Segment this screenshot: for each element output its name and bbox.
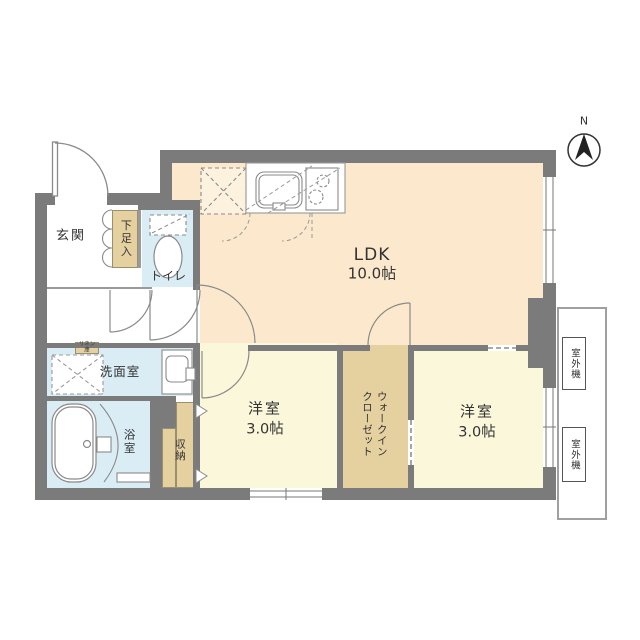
wall (248, 345, 370, 351)
wall (150, 428, 162, 488)
outdoor-unit-2-label: 室外機 (567, 439, 581, 471)
opening-bedroom2-top (488, 345, 516, 351)
outdoor-unit-box-2: 室外機 (562, 427, 586, 482)
bath-label: 浴室 (122, 429, 135, 456)
bedroom1-name-label: 洋室 (248, 400, 282, 417)
wall (528, 298, 543, 368)
window-ldk (543, 177, 556, 283)
entrance-label: 玄関 (56, 230, 86, 245)
linen-label: リネン庫 (77, 343, 97, 354)
outdoor-unit-1-label: 室外機 (567, 348, 581, 380)
entrance-door (53, 142, 109, 196)
outdoor-unit-box-1: 室外機 (562, 337, 586, 390)
north-arrow-icon (568, 134, 600, 166)
hall-door-arc (110, 290, 152, 332)
washroom-label: 洗面室 (100, 365, 141, 379)
ldk-size-label: 10.0帖 (348, 265, 396, 282)
partition-line (47, 287, 152, 289)
wic-label: ウォークイン クローゼット (359, 391, 388, 457)
wall (47, 343, 198, 348)
toilet-door-arc (150, 290, 200, 340)
wall (516, 345, 543, 351)
window-bedroom1 (250, 488, 322, 500)
bedroom2-name-label: 洋室 (460, 403, 494, 420)
bedroom2-size-label: 3.0帖 (458, 425, 496, 442)
wall (193, 343, 200, 488)
window-bedroom2 (543, 388, 556, 467)
bedroom1-size-label: 3.0帖 (246, 422, 284, 439)
opening-wic-bedroom2 (408, 420, 414, 465)
floor-plan: 室外機 室外機 (0, 0, 640, 640)
wall (47, 396, 162, 401)
compass-label: N (580, 116, 588, 129)
shoe-label: 下足入 (119, 220, 132, 259)
wall (408, 345, 414, 420)
toilet-label: トイレ (150, 270, 186, 284)
wall (35, 193, 47, 500)
wall (410, 345, 488, 351)
storage-label: 収納 (174, 439, 186, 462)
wall (160, 150, 556, 163)
room-ldk-kitchen-strip (172, 163, 543, 201)
wall (193, 205, 200, 290)
partition-line (138, 210, 141, 268)
wall (337, 351, 343, 488)
wall (150, 396, 176, 428)
wall (138, 200, 200, 210)
wall (408, 465, 414, 488)
ldk-name-label: LDK (354, 246, 391, 266)
